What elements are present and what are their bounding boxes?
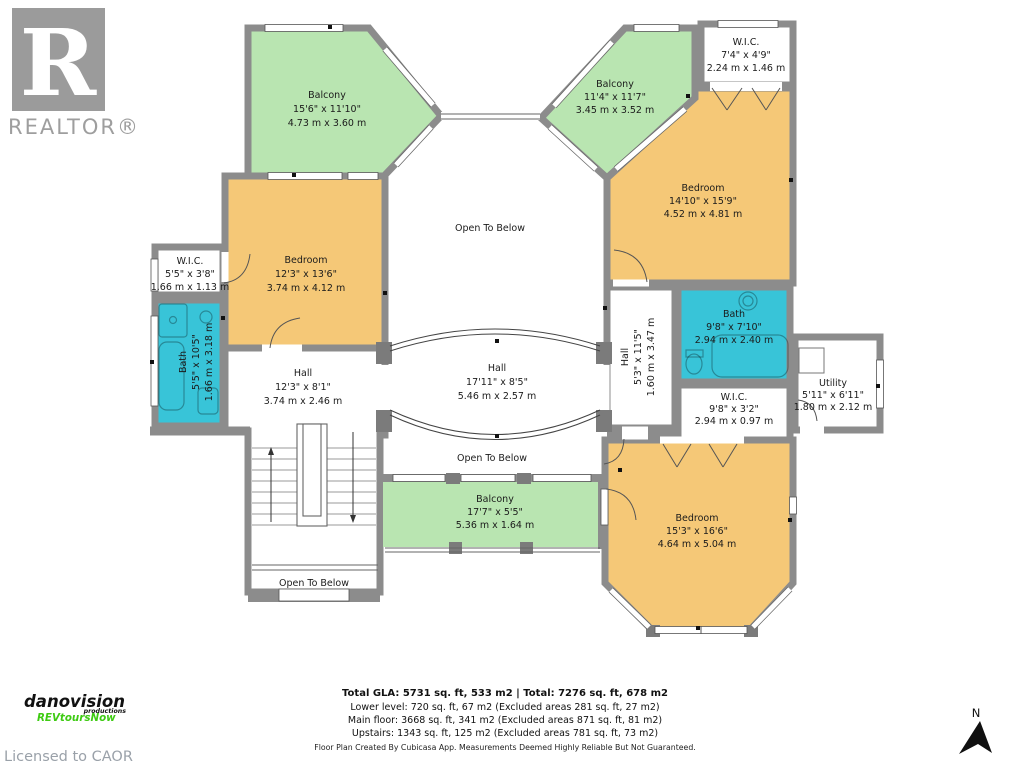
open-to-below-label: Open To Below: [279, 578, 349, 589]
room-label: Hall: [488, 363, 506, 374]
realtor-logo: R REALTOR®: [8, 8, 140, 139]
north-label: N: [972, 706, 981, 720]
room-label: Bath: [178, 351, 189, 373]
room-dim-imperial: 5'5" x 10'5": [191, 334, 202, 390]
room-dim-imperial: 11'4" x 11'7": [584, 92, 646, 103]
room-dim-metric: 1.80 m x 2.12 m: [794, 402, 873, 413]
room-dim-imperial: 17'7" x 5'5": [467, 507, 523, 518]
room-dim-imperial: 5'5" x 3'8": [165, 269, 215, 280]
room-label: Bedroom: [676, 513, 719, 524]
room-dim-metric: 1.60 m x 3.47 m: [646, 318, 657, 397]
open-to-below-label: Open To Below: [457, 453, 527, 464]
room-label: W.I.C.: [721, 392, 748, 403]
main-floor-line: Main floor: 3668 sq. ft, 341 m2 (Exclude…: [348, 715, 662, 726]
room-dim-metric: 3.74 m x 4.12 m: [267, 283, 346, 294]
room-dim-imperial: 7'4" x 4'9": [721, 50, 771, 61]
room-dim-imperial: 9'8" x 3'2": [709, 404, 759, 415]
room-label: Bedroom: [285, 255, 328, 266]
room-label: Bedroom: [682, 183, 725, 194]
room-dim-imperial: 15'3" x 16'6": [666, 526, 728, 537]
license-text: Licensed to CAOR: [4, 749, 133, 765]
room-dim-metric: 4.64 m x 5.04 m: [658, 539, 737, 550]
room-dim-metric: 3.45 m x 3.52 m: [576, 105, 655, 116]
room-label: Balcony: [476, 494, 514, 505]
room-dim-imperial: 12'3" x 8'1": [275, 382, 331, 393]
total-gla-line: Total GLA: 5731 sq. ft, 533 m2 | Total: …: [342, 688, 668, 699]
room-label: Balcony: [596, 79, 634, 90]
upstairs-line: Upstairs: 1343 sq. ft, 125 m2 (Excluded …: [352, 728, 658, 739]
room-dim-metric: 5.46 m x 2.57 m: [458, 391, 537, 402]
room-dim-imperial: 15'6" x 11'10": [293, 104, 361, 115]
producer-logo-brand: REVtoursNow: [37, 712, 116, 724]
footer-summary: Total GLA: 5731 sq. ft, 533 m2 | Total: …: [314, 688, 696, 752]
room-dim-metric: 2.94 m x 2.40 m: [695, 335, 774, 346]
room-label: Balcony: [308, 90, 346, 101]
room-dim-metric: 4.52 m x 4.81 m: [664, 209, 743, 220]
room-dim-metric: 2.24 m x 1.46 m: [707, 63, 786, 74]
room-label: Hall: [294, 368, 312, 379]
room-dim-imperial: 14'10" x 15'9": [669, 196, 737, 207]
room-dim-metric: 4.73 m x 3.60 m: [288, 118, 367, 129]
lower-level-line: Lower level: 720 sq. ft, 67 m2 (Excluded…: [350, 702, 659, 713]
disclaimer-line: Floor Plan Created By Cubicasa App. Meas…: [314, 743, 696, 752]
room-dim-imperial: 5'11" x 6'11": [802, 390, 864, 401]
room-dim-metric: 3.74 m x 2.46 m: [264, 396, 343, 407]
room-dim-metric: 1.66 m x 3.18 m: [204, 323, 215, 402]
room-dim-imperial: 12'3" x 13'6": [275, 269, 337, 280]
room-dim-imperial: 5'3" x 11'5": [633, 329, 644, 385]
room-label: Utility: [819, 378, 847, 389]
washer-icon: [799, 348, 824, 373]
room-dim-metric: 2.94 m x 0.97 m: [695, 416, 774, 427]
realtor-logo-text: REALTOR®: [8, 115, 140, 139]
room-dim-metric: 5.36 m x 1.64 m: [456, 520, 535, 531]
room-balcony-top-left-shape: [248, 28, 441, 176]
realtor-logo-r: R: [20, 9, 97, 117]
north-arrow-icon: [959, 721, 992, 754]
open-to-below-label: Open To Below: [455, 223, 525, 234]
producer-logo: danovision productions REVtoursNow: [24, 692, 126, 724]
room-label: W.I.C.: [177, 256, 204, 267]
room-dim-imperial: 9'8" x 7'10": [706, 322, 762, 333]
room-dim-imperial: 17'11" x 8'5": [466, 377, 528, 388]
room-dim-metric: 1.66 m x 1.13 m: [151, 282, 230, 293]
room-label: W.I.C.: [733, 37, 760, 48]
room-label: Bath: [723, 309, 745, 320]
room-label: Hall: [620, 348, 631, 366]
floor-plan-canvas: Balcony 15'6" x 11'10" 4.73 m x 3.60 m B…: [0, 0, 1024, 768]
north-indicator: N: [959, 706, 992, 754]
